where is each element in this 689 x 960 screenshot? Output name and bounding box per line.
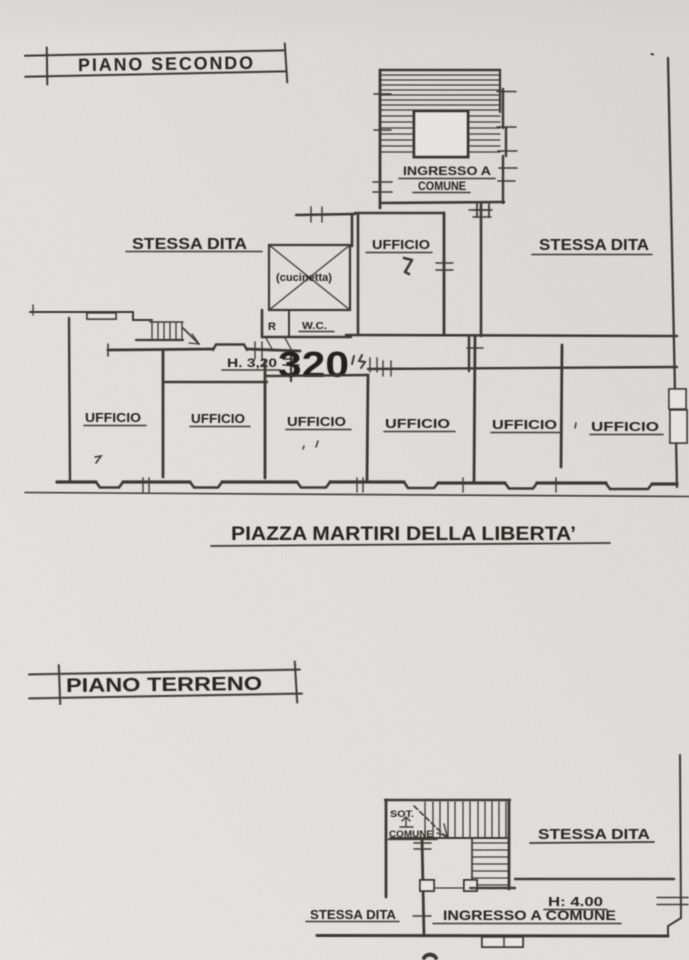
svg-text:UFFICIO: UFFICIO xyxy=(372,237,430,252)
svg-text:R: R xyxy=(268,321,276,333)
svg-text:INGRESSO A COMUNE: INGRESSO A COMUNE xyxy=(443,908,616,923)
svg-text:COMUNE: COMUNE xyxy=(389,829,433,839)
svg-text:STESSA DITA: STESSA DITA xyxy=(539,237,649,254)
svg-text:UFFICIO: UFFICIO xyxy=(191,411,245,426)
svg-text:H: 4.00: H: 4.00 xyxy=(548,895,603,909)
svg-text:H. 3,20: H. 3,20 xyxy=(227,358,277,370)
svg-text:UFFICIO: UFFICIO xyxy=(591,419,659,434)
svg-text:INGRESSO A: INGRESSO A xyxy=(403,164,491,178)
svg-text:UFFICIO: UFFICIO xyxy=(85,410,141,425)
svg-text:(cucinetta): (cucinetta) xyxy=(276,272,332,284)
svg-text:STESSA DITA: STESSA DITA xyxy=(310,908,396,922)
svg-text:320: 320 xyxy=(278,344,349,385)
svg-text:COMUNE: COMUNE xyxy=(418,181,466,193)
svg-text:STESSA DITA: STESSA DITA xyxy=(132,236,247,253)
svg-text:UFFICIO: UFFICIO xyxy=(492,417,557,432)
svg-text:PIANO TERRENO: PIANO TERRENO xyxy=(66,674,262,697)
svg-text:UFFICIO: UFFICIO xyxy=(287,414,346,429)
svg-text:UFFICIO: UFFICIO xyxy=(385,416,450,431)
svg-text:STESSA DITA: STESSA DITA xyxy=(538,826,650,843)
svg-text:W.C.: W.C. xyxy=(302,320,327,332)
svg-text:PIAZZA MARTIRI DELLA LIBERTA’: PIAZZA MARTIRI DELLA LIBERTA’ xyxy=(231,524,576,545)
svg-text:SOT.: SOT. xyxy=(390,809,414,819)
svg-text:PIANO SECONDO: PIANO SECONDO xyxy=(78,53,255,75)
